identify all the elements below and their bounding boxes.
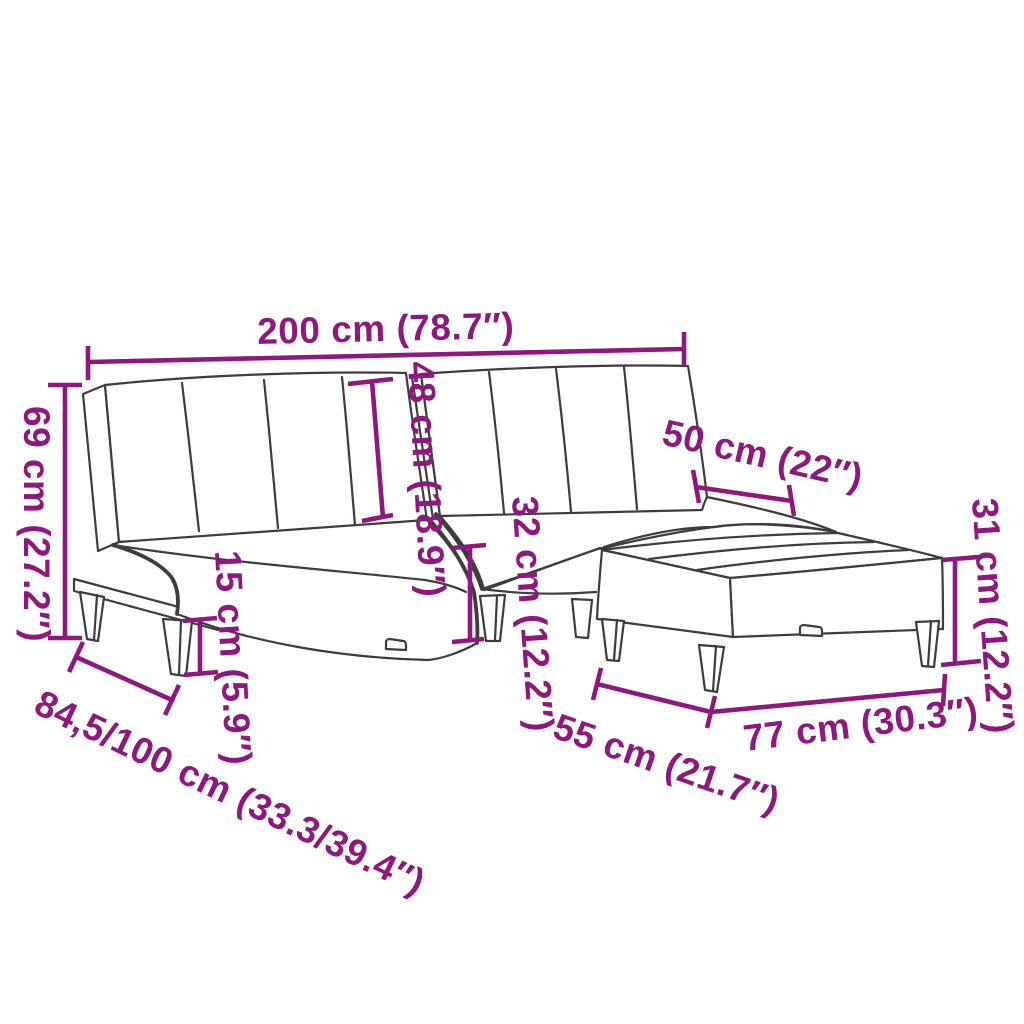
ottoman-left-leg (602, 619, 624, 661)
ottoman-frame-clip (800, 625, 822, 636)
dimension-back-height: 69 cm (27.2″) (16, 385, 82, 642)
sofa-frame-clip (386, 639, 406, 650)
ottoman-front-leg (699, 645, 724, 692)
dimension-line (593, 668, 715, 728)
ottoman-drawing (597, 533, 943, 692)
product-dimension-diagram: 200 cm (78.7″) 69 cm (27.2″) 48 cm (18.9… (0, 0, 1024, 1024)
sofa-back-left-leg (80, 592, 104, 641)
dimension-ottoman-width: 77 cm (30.3″) (711, 674, 980, 759)
sofa-front-left-leg (163, 619, 192, 676)
sofa-bed-dimension-drawing: 200 cm (78.7″) 69 cm (27.2″) 48 cm (18.9… (0, 0, 1024, 1024)
sofa-hidden-leg (572, 599, 592, 638)
sofa-front-middle-leg (480, 595, 505, 641)
dimension-label-total-width: 200 cm (78.7″) (257, 305, 515, 352)
dimension-label-back-height: 69 cm (27.2″) (16, 406, 57, 642)
